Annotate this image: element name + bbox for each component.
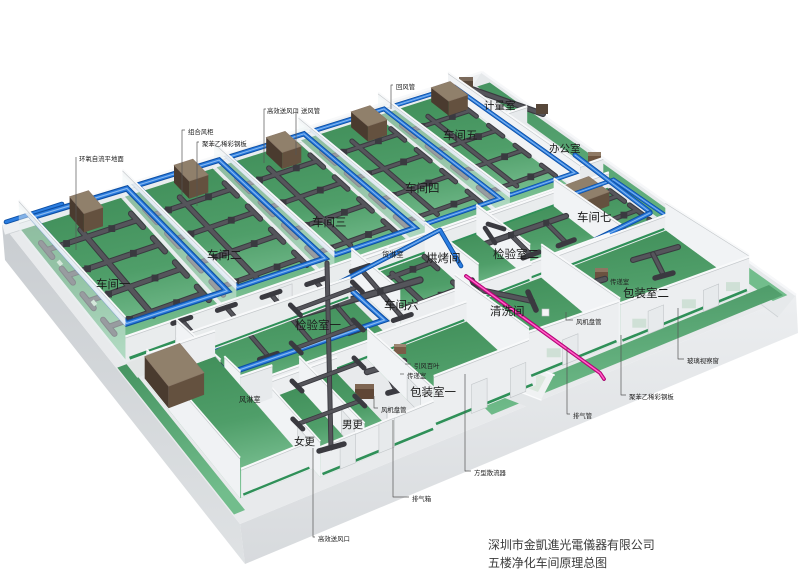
svg-text:深圳市金凱進光電儀器有限公司: 深圳市金凱進光電儀器有限公司 [488, 537, 655, 552]
svg-text:环氧自流平地面: 环氧自流平地面 [79, 154, 124, 163]
svg-text:车间六: 车间六 [384, 298, 419, 312]
svg-text:车间二: 车间二 [207, 248, 242, 262]
svg-text:风淋室: 风淋室 [239, 395, 261, 404]
svg-text:五楼净化车间原理总图: 五楼净化车间原理总图 [488, 555, 607, 570]
svg-text:排气管: 排气管 [573, 411, 592, 420]
svg-text:玻璃视察窗: 玻璃视察窗 [687, 356, 719, 365]
svg-text:排气箱: 排气箱 [412, 494, 432, 503]
svg-text:清洗间: 清洗间 [490, 305, 525, 318]
svg-text:检验室一: 检验室一 [295, 318, 341, 332]
svg-text:聚苯乙稀彩钢板: 聚苯乙稀彩钢板 [202, 139, 247, 148]
svg-text:传递室: 传递室 [407, 371, 427, 380]
svg-text:聚苯乙稀彩钢板: 聚苯乙稀彩钢板 [629, 392, 674, 401]
svg-text:车间三: 车间三 [312, 215, 347, 229]
svg-text:车间五: 车间五 [443, 128, 478, 142]
svg-text:风机盘管: 风机盘管 [576, 317, 602, 326]
svg-text:高效送风口: 高效送风口 [267, 106, 299, 115]
svg-text:送风管: 送风管 [301, 106, 320, 115]
svg-text:包装室一: 包装室一 [410, 385, 456, 399]
svg-text:货淋室: 货淋室 [382, 250, 404, 259]
svg-text:方型散流器: 方型散流器 [474, 468, 507, 477]
svg-text:车间四: 车间四 [405, 181, 440, 195]
svg-text:办公室: 办公室 [549, 142, 581, 155]
svg-text:回风管: 回风管 [396, 82, 415, 91]
svg-text:车间一: 车间一 [96, 277, 131, 291]
svg-text:计量室: 计量室 [484, 99, 516, 112]
svg-text:包装室二: 包装室二 [623, 286, 669, 300]
svg-text:烘烤间: 烘烤间 [426, 251, 461, 265]
svg-text:传递室: 传递室 [610, 277, 630, 286]
svg-text:组合风柜: 组合风柜 [188, 127, 214, 136]
svg-text:车间七: 车间七 [577, 210, 612, 224]
svg-text:风机盘管: 风机盘管 [381, 405, 407, 414]
svg-text:高效送风口: 高效送风口 [318, 534, 350, 543]
svg-text:引风百叶: 引风百叶 [414, 361, 440, 370]
svg-text:女更: 女更 [294, 435, 315, 448]
svg-text:男更: 男更 [342, 419, 363, 431]
svg-text:检验室二: 检验室二 [493, 247, 539, 261]
